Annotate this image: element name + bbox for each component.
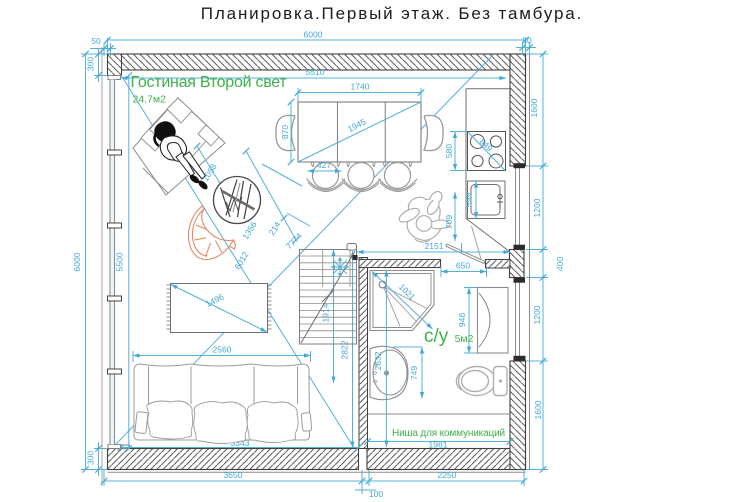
svg-text:2560: 2560 bbox=[213, 345, 232, 355]
svg-text:50: 50 bbox=[522, 36, 532, 46]
svg-text:300: 300 bbox=[86, 57, 96, 71]
svg-text:1740: 1740 bbox=[351, 82, 370, 92]
svg-text:870: 870 bbox=[280, 125, 290, 139]
svg-text:3650: 3650 bbox=[224, 470, 243, 480]
svg-text:1961: 1961 bbox=[429, 440, 448, 450]
svg-text:948: 948 bbox=[457, 313, 467, 327]
svg-text:Гостиная Второй свет: Гостиная Второй свет bbox=[131, 74, 288, 91]
svg-text:5510: 5510 bbox=[306, 67, 325, 77]
svg-text:24.7м2: 24.7м2 bbox=[133, 94, 167, 106]
svg-text:427: 427 bbox=[317, 160, 331, 170]
svg-text:2822: 2822 bbox=[340, 340, 350, 359]
svg-text:2151: 2151 bbox=[425, 241, 444, 251]
svg-text:2632: 2632 bbox=[373, 351, 383, 370]
svg-text:400: 400 bbox=[555, 257, 565, 271]
svg-text:6000: 6000 bbox=[304, 30, 323, 40]
svg-text:709: 709 bbox=[444, 215, 454, 229]
svg-text:6000: 6000 bbox=[72, 252, 82, 271]
svg-text:2250: 2250 bbox=[438, 470, 457, 480]
svg-text:1200: 1200 bbox=[532, 305, 542, 324]
svg-text:599: 599 bbox=[464, 193, 474, 207]
svg-text:300: 300 bbox=[86, 451, 96, 465]
svg-text:Ниша для коммуникаций: Ниша для коммуникаций bbox=[392, 428, 505, 439]
svg-text:1914: 1914 bbox=[321, 303, 331, 322]
svg-text:1600: 1600 bbox=[529, 98, 539, 117]
svg-text:650: 650 bbox=[456, 261, 470, 271]
svg-text:50: 50 bbox=[91, 36, 101, 46]
svg-text:Планировка.Первый этаж. Без та: Планировка.Первый этаж. Без тамбура. bbox=[201, 4, 583, 23]
svg-text:100: 100 bbox=[369, 489, 383, 499]
svg-text:580: 580 bbox=[444, 144, 454, 158]
svg-text:749: 749 bbox=[409, 366, 419, 380]
svg-text:1200: 1200 bbox=[532, 198, 542, 217]
svg-text:5500: 5500 bbox=[115, 252, 125, 271]
svg-text:1600: 1600 bbox=[533, 400, 543, 419]
